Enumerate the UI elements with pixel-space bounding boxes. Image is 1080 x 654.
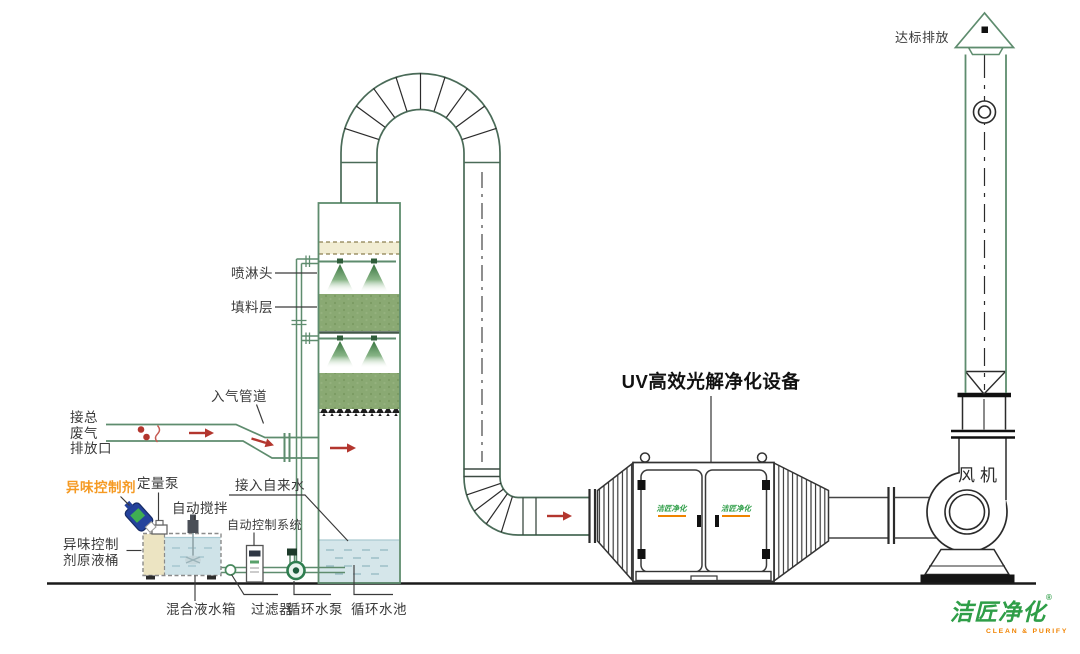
inlet-diffuser (598, 463, 634, 581)
uv-door-left (641, 470, 702, 572)
door-logo-underline (722, 515, 750, 517)
spray-cone (360, 341, 388, 368)
spray-cone (326, 264, 354, 293)
fan-label: 风机 (958, 466, 1002, 486)
gas-particle (138, 426, 145, 433)
spray-header-1 (319, 259, 396, 293)
process-diagram: 喷淋头 填料层 入气管道 接总 废气 排放口 接入自来水 异味控制剂 定量泵 自… (0, 0, 1080, 654)
brand-tagline: CLEAN & PURIFY (986, 628, 1068, 635)
flow-arrow (330, 443, 356, 452)
door-logo-left: 洁匠净化 (641, 503, 702, 517)
mix-tank-label: 混合液水箱 (166, 602, 236, 618)
packing-layer-2 (319, 373, 400, 409)
door-handle-left (697, 515, 701, 527)
uv-door-right (706, 470, 767, 572)
flow-arrow (547, 511, 572, 520)
door-logo-left-text: 洁匠净化 (657, 504, 687, 513)
gas-particle (143, 434, 150, 441)
uv-unit (598, 396, 829, 582)
support-grid (319, 409, 400, 416)
door-logo-right: 洁匠净化 (706, 503, 767, 517)
discharge-label: 达标排放 (895, 31, 949, 46)
agent-barrel-section (144, 534, 165, 575)
door-handle-right (715, 515, 719, 527)
circ-pump-label: 循环水泵 (287, 602, 343, 618)
exhaust-stack (956, 13, 1014, 393)
lifting-eye (641, 453, 650, 462)
spray-cone (326, 341, 354, 368)
auto-stir-label: 自动搅拌 (172, 501, 228, 517)
control-box (247, 546, 264, 583)
spray-head-label: 喷淋头 (231, 266, 273, 282)
door-logo-right-text: 洁匠净化 (721, 504, 751, 513)
waste-inlet-label: 接总 废气 排放口 (70, 410, 112, 457)
valve (287, 549, 297, 556)
agent-barrel-label: 异味控制 剂原液桶 (63, 537, 119, 569)
circulating-pump-symbol (288, 562, 305, 579)
odor-agent-label: 异味控制剂 (66, 480, 136, 496)
inlet-duct-label: 入气管道 (211, 389, 267, 405)
spray-tower (319, 203, 401, 583)
circ-pool-label: 循环水池 (351, 602, 407, 618)
diagram-canvas (0, 0, 1080, 654)
tap-water-label: 接入自来水 (235, 478, 305, 494)
uv-unit-title: UV高效光解净化设备 (622, 371, 801, 392)
packing-layer-label: 填料层 (231, 300, 273, 316)
metering-pump-label: 定量泵 (137, 476, 179, 492)
brand-logo-text: 洁匠净化 (950, 599, 1046, 625)
registered-mark: ® (1046, 593, 1053, 602)
packing-layer-1 (319, 294, 400, 331)
brand-logo: 洁匠净化® (950, 593, 1053, 627)
flow-arrow (189, 428, 214, 437)
spray-header-2 (319, 336, 396, 369)
lifting-eye (758, 453, 767, 462)
waste-gas-inlet-pipe (106, 425, 318, 463)
demister-layer (319, 242, 400, 254)
auto-control-label: 自动控制系统 (227, 519, 302, 533)
gas-squiggle (156, 426, 160, 443)
door-logo-underline (658, 515, 686, 517)
outlet-diffuser (774, 463, 829, 581)
fan-pedestal (925, 550, 1009, 575)
circulating-pool-water (319, 540, 399, 582)
spray-cone (360, 264, 388, 293)
fan-base (921, 575, 1015, 583)
filter-symbol (226, 565, 236, 575)
